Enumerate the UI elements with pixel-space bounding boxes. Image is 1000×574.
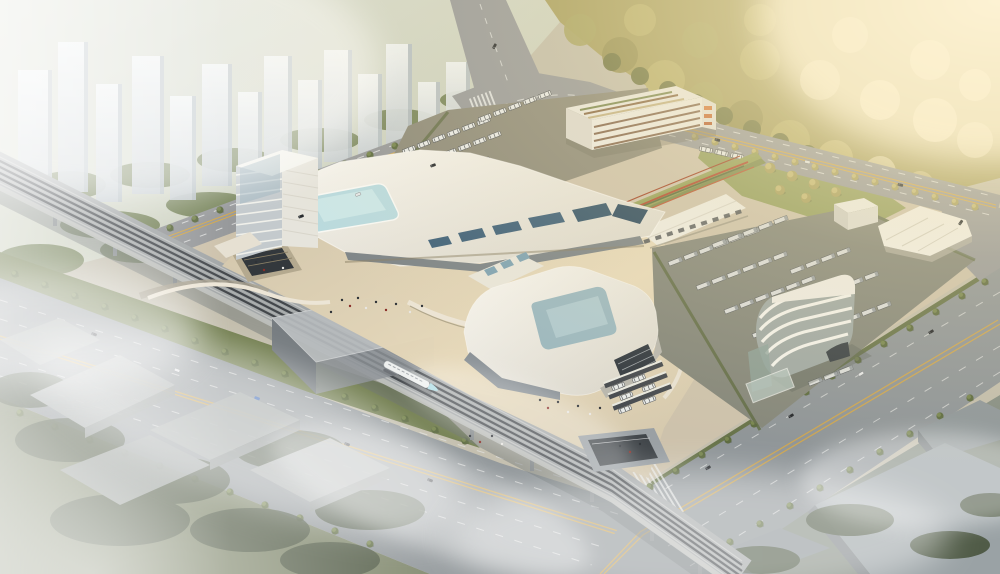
aerial-rendering: [0, 0, 1000, 574]
atmosphere: [0, 0, 1000, 574]
